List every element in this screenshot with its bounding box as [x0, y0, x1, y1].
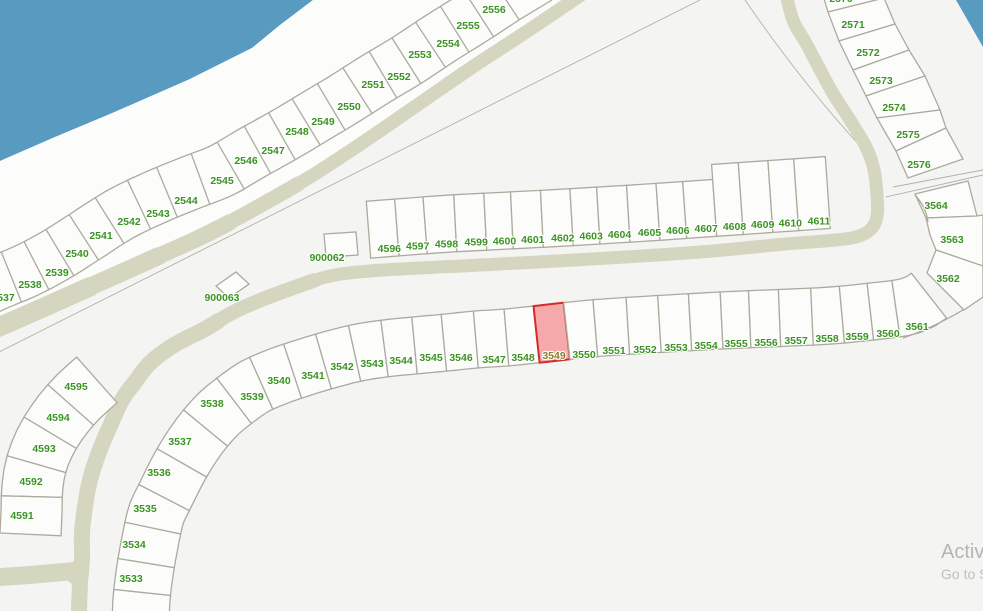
svg-text:2574: 2574	[882, 102, 906, 114]
svg-text:3557: 3557	[784, 335, 808, 347]
svg-text:2553: 2553	[408, 49, 432, 61]
svg-text:4603: 4603	[579, 231, 603, 243]
svg-text:4602: 4602	[551, 232, 575, 244]
svg-text:4608: 4608	[723, 221, 747, 233]
svg-text:3556: 3556	[754, 337, 778, 349]
svg-text:4594: 4594	[46, 412, 70, 424]
svg-text:3548: 3548	[511, 352, 535, 364]
svg-text:3535: 3535	[133, 503, 157, 515]
svg-text:3545: 3545	[419, 352, 443, 364]
svg-text:900063: 900063	[204, 292, 239, 304]
svg-text:2538: 2538	[18, 279, 42, 291]
svg-text:4596: 4596	[378, 243, 402, 255]
svg-text:4611: 4611	[808, 215, 831, 227]
svg-text:4591: 4591	[10, 510, 34, 522]
svg-text:2575: 2575	[896, 129, 920, 141]
svg-text:2541: 2541	[89, 230, 113, 242]
svg-text:2556: 2556	[482, 4, 506, 16]
svg-text:2552: 2552	[387, 71, 411, 83]
svg-text:3554: 3554	[694, 340, 718, 352]
svg-text:3533: 3533	[119, 573, 143, 585]
svg-text:3540: 3540	[267, 375, 291, 387]
svg-text:3552: 3552	[633, 344, 657, 356]
svg-text:3564: 3564	[924, 200, 948, 212]
svg-text:3562: 3562	[936, 273, 960, 285]
svg-text:2543: 2543	[146, 208, 170, 220]
svg-text:3551: 3551	[602, 345, 626, 357]
svg-text:3543: 3543	[360, 358, 384, 370]
svg-text:3542: 3542	[330, 361, 354, 373]
svg-text:2550: 2550	[337, 101, 361, 113]
svg-text:2572: 2572	[856, 47, 880, 59]
svg-text:2573: 2573	[869, 75, 893, 87]
svg-text:3559: 3559	[845, 331, 869, 343]
svg-text:4600: 4600	[493, 235, 517, 247]
svg-text:Activate Windows: Activate Windows	[941, 541, 983, 563]
svg-text:2539: 2539	[45, 267, 69, 279]
svg-text:2547: 2547	[261, 145, 285, 157]
svg-text:4606: 4606	[666, 225, 690, 237]
svg-text:4607: 4607	[694, 223, 718, 235]
svg-text:2551: 2551	[361, 79, 385, 91]
svg-text:3560: 3560	[876, 328, 900, 340]
svg-text:4592: 4592	[19, 476, 43, 488]
svg-text:4593: 4593	[32, 443, 56, 455]
svg-text:3558: 3558	[815, 333, 839, 345]
svg-text:3553: 3553	[664, 342, 688, 354]
svg-text:3541: 3541	[301, 370, 325, 382]
svg-text:4610: 4610	[779, 217, 803, 229]
svg-text:3547: 3547	[482, 354, 506, 366]
svg-text:3561: 3561	[905, 321, 929, 333]
svg-text:3534: 3534	[122, 539, 146, 551]
svg-text:2540: 2540	[65, 248, 89, 260]
svg-text:3550: 3550	[572, 349, 596, 361]
svg-text:3544: 3544	[389, 355, 413, 367]
svg-text:3538: 3538	[200, 398, 224, 410]
svg-text:4604: 4604	[608, 229, 632, 241]
svg-text:2555: 2555	[456, 20, 480, 32]
svg-text:2542: 2542	[117, 216, 141, 228]
svg-text:3546: 3546	[449, 352, 473, 364]
svg-text:3549: 3549	[542, 350, 566, 362]
svg-text:2570: 2570	[829, 0, 853, 5]
svg-text:2544: 2544	[174, 195, 198, 207]
svg-text:4605: 4605	[638, 227, 662, 239]
svg-text:3563: 3563	[940, 234, 964, 246]
svg-text:900062: 900062	[309, 252, 344, 264]
svg-text:3536: 3536	[147, 467, 171, 479]
svg-text:2554: 2554	[436, 38, 460, 50]
svg-text:4599: 4599	[464, 237, 488, 249]
svg-text:3539: 3539	[240, 391, 264, 403]
svg-text:3537: 3537	[168, 436, 192, 448]
svg-text:2537: 2537	[0, 292, 15, 304]
svg-text:4609: 4609	[751, 219, 775, 231]
svg-text:2548: 2548	[285, 126, 309, 138]
svg-text:2576: 2576	[907, 159, 931, 171]
svg-text:4598: 4598	[435, 239, 459, 251]
svg-text:Go to Settings to activate Win: Go to Settings to activate Windows.	[941, 566, 983, 582]
svg-text:2549: 2549	[311, 116, 335, 128]
svg-text:2571: 2571	[841, 19, 865, 31]
svg-text:4595: 4595	[64, 381, 88, 393]
svg-text:2546: 2546	[234, 155, 258, 167]
svg-text:3555: 3555	[724, 338, 748, 350]
svg-text:4601: 4601	[521, 234, 545, 246]
svg-text:2545: 2545	[210, 175, 234, 187]
svg-text:4597: 4597	[406, 241, 430, 253]
